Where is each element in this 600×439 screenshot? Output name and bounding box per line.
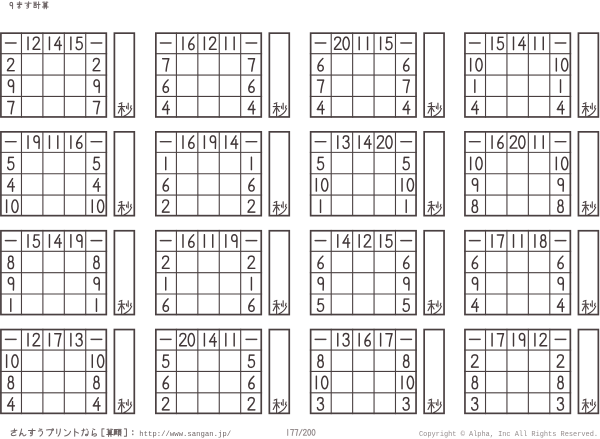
svg-text:http://www.sangan.jp/: http://www.sangan.jp/ — [139, 431, 231, 439]
svg-text:Copyright © Alpha, Inc All Rig: Copyright © Alpha, Inc All Rights Reserv… — [419, 430, 598, 439]
